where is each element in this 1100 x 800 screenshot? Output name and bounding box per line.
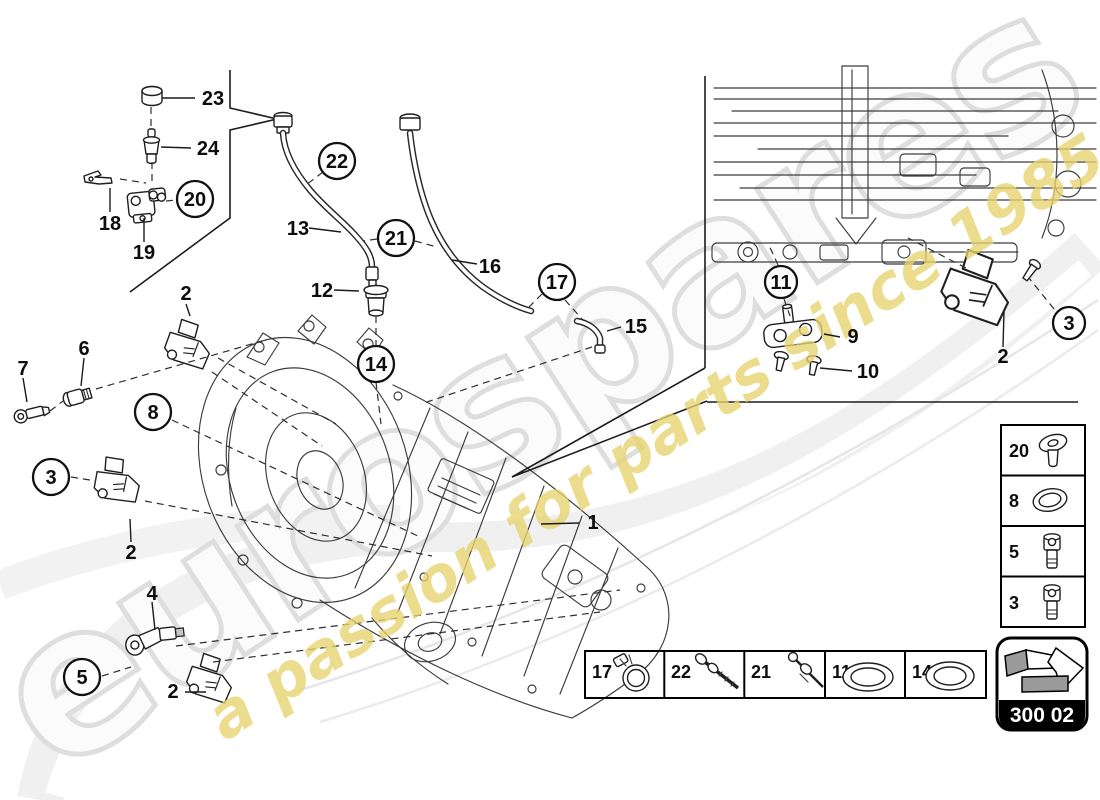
section-badge[interactable]: 300 02: [997, 638, 1087, 730]
pan-screw-washer-icon: [1037, 431, 1068, 466]
callout-19[interactable]: 19: [133, 242, 155, 264]
part-2-sensor-top-left: [163, 318, 213, 369]
hose-13: [274, 113, 378, 290]
callout-1[interactable]: 1: [587, 512, 598, 534]
callout-13[interactable]: 13: [287, 218, 309, 240]
callout-17[interactable]: 17: [539, 264, 575, 300]
o-ring-icon: [926, 662, 974, 690]
part-19-bracket: [127, 188, 168, 224]
svg-text:21: 21: [385, 228, 407, 250]
legend-strip: 17 22 21 11 14: [585, 651, 986, 698]
part-23-cap: [142, 87, 162, 106]
legend-17-label: 17: [592, 662, 612, 682]
svg-text:20: 20: [184, 189, 206, 211]
svg-text:3: 3: [45, 467, 56, 489]
callout-5[interactable]: 5: [64, 659, 100, 695]
part-2-sensor-left: [92, 455, 140, 505]
callout-3-left[interactable]: 3: [33, 459, 69, 495]
part-18-bracket: [84, 171, 112, 184]
callout-20[interactable]: 20: [177, 181, 213, 217]
hardware-row-3-label: 3: [1009, 593, 1019, 613]
hardware-row-5-label: 5: [1009, 542, 1019, 562]
callout-15[interactable]: 15: [625, 316, 647, 338]
callout-24[interactable]: 24: [197, 138, 220, 160]
callout-9[interactable]: 9: [847, 326, 858, 348]
part-7-plug: [13, 403, 51, 424]
legend-22-label: 22: [671, 662, 691, 682]
svg-text:17: 17: [546, 272, 568, 294]
part-6-switch: [62, 386, 93, 407]
callout-10[interactable]: 10: [857, 361, 879, 383]
badge-code: 300 02: [1010, 704, 1074, 727]
callout-2-left[interactable]: 2: [125, 542, 136, 564]
callout-16[interactable]: 16: [479, 256, 501, 278]
callout-7[interactable]: 7: [17, 358, 28, 380]
hardware-row-20-label: 20: [1009, 441, 1029, 461]
callout-3-inset[interactable]: 3: [1053, 307, 1085, 339]
screw-icon: [694, 652, 738, 688]
callout-12[interactable]: 12: [311, 280, 333, 302]
svg-text:22: 22: [326, 151, 348, 173]
legend-21-label: 21: [751, 662, 771, 682]
parts-diagram-page: eurospares: [0, 0, 1100, 800]
cap-screw-icon: [1044, 534, 1060, 568]
callout-2-inset[interactable]: 2: [997, 346, 1008, 368]
svg-text:14: 14: [365, 354, 388, 376]
callout-2-bottom[interactable]: 2: [167, 681, 178, 703]
svg-text:3: 3: [1063, 313, 1074, 335]
callout-11[interactable]: 11: [765, 266, 797, 298]
callout-18[interactable]: 18: [99, 213, 121, 235]
hardware-table: 20 8 5 3: [1001, 425, 1085, 627]
parts-diagram-canvas: eurospares: [0, 0, 1100, 800]
svg-text:8: 8: [147, 402, 158, 424]
callout-2-top-left[interactable]: 2: [180, 283, 191, 305]
cap-screw-icon: [1044, 585, 1060, 619]
callout-21[interactable]: 21: [378, 220, 414, 256]
part-12-plug: [364, 286, 388, 317]
screw-icon: [789, 653, 824, 688]
o-ring-icon: [1031, 486, 1069, 515]
hardware-row-8-label: 8: [1009, 491, 1019, 511]
callout-8[interactable]: 8: [135, 394, 171, 430]
clamp-icon: [613, 653, 649, 691]
svg-text:11: 11: [770, 272, 791, 294]
callout-23[interactable]: 23: [202, 88, 224, 110]
svg-text:5: 5: [76, 667, 87, 689]
part-24-bleeder-valve: [144, 129, 160, 164]
callout-4[interactable]: 4: [146, 583, 158, 605]
callout-6[interactable]: 6: [78, 338, 89, 360]
callout-14[interactable]: 14: [358, 346, 394, 382]
callout-22[interactable]: 22: [319, 143, 355, 179]
o-ring-icon: [843, 663, 893, 691]
